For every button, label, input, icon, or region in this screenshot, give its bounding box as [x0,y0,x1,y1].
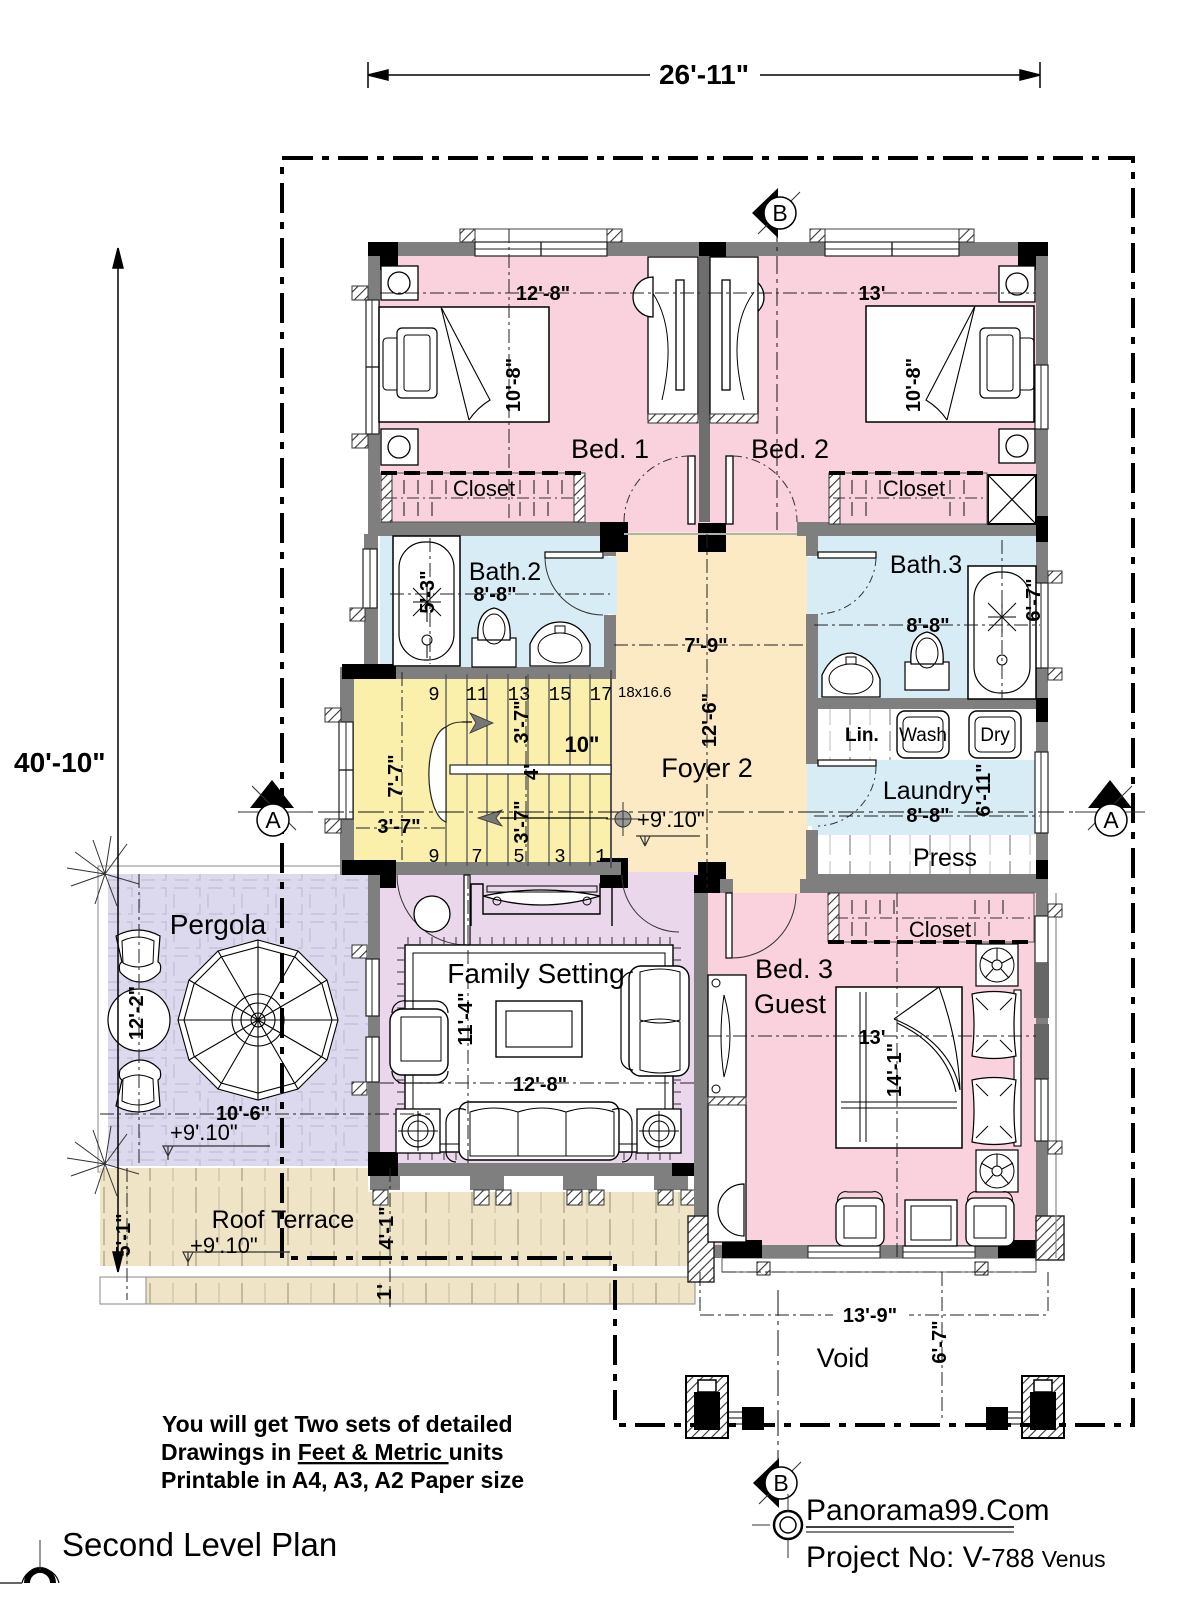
svg-text:A: A [265,807,281,833]
svg-text:Roof Terrace: Roof Terrace [212,1206,355,1234]
svg-text:Bath.3: Bath.3 [890,551,962,579]
svg-text:+9'.10": +9'.10" [637,807,705,832]
svg-text:4'-1": 4'-1" [376,1206,398,1249]
svg-text:12'-8": 12'-8" [513,1074,567,1096]
svg-text:12'-6": 12'-6" [699,693,721,747]
svg-text:7'-9": 7'-9" [684,635,727,657]
svg-text:13': 13' [858,1027,885,1049]
svg-text:6'-7": 6'-7" [929,1320,951,1363]
svg-text:A: A [1103,807,1119,833]
svg-text:Foyer 2: Foyer 2 [661,753,753,783]
svg-text:Press: Press [913,844,977,872]
svg-text:15: 15 [549,684,572,706]
svg-text:11'-4": 11'-4" [455,992,477,1045]
svg-text:Guest: Guest [754,989,827,1019]
svg-text:Bath.2: Bath.2 [469,558,541,586]
svg-text:6'-7": 6'-7" [1023,578,1045,621]
svg-text:You will get Two sets of detai: You will get Two sets of detailed [162,1411,513,1437]
svg-text:10'-8": 10'-8" [503,358,525,412]
svg-text:Pergola: Pergola [170,909,267,940]
svg-text:7'-7": 7'-7" [385,754,407,797]
svg-text:Drawings in Feet & Metric unit: Drawings in Feet & Metric units [161,1439,504,1465]
svg-text:17: 17 [590,684,613,706]
svg-text:3'-7": 3'-7" [511,800,533,843]
svg-text:Bed. 3: Bed. 3 [755,954,833,984]
svg-text:Wash: Wash [899,725,947,746]
svg-text:12'-2": 12'-2" [126,986,148,1040]
svg-text:8'-8": 8'-8" [473,584,516,606]
svg-text:Closet: Closet [453,476,515,501]
svg-text:13'-9": 13'-9" [843,1305,897,1327]
svg-text:Family Setting: Family Setting [447,958,624,989]
svg-text:+9'.10": +9'.10" [170,1120,238,1145]
svg-text:3: 3 [554,846,565,868]
svg-text:14'-1": 14'-1" [884,1043,906,1097]
svg-text:Panorama99.Com: Panorama99.Com [806,1494,1049,1527]
svg-text:Project No: V-788 Venus: Project No: V-788 Venus [806,1541,1106,1574]
svg-text:13': 13' [858,283,885,305]
svg-text:3'-7": 3'-7" [511,700,533,743]
svg-text:6'-11": 6'-11" [973,763,995,816]
svg-text:7: 7 [471,846,482,868]
svg-text:12'-8": 12'-8" [516,283,570,305]
svg-text:8'-8": 8'-8" [906,805,949,827]
svg-text:9: 9 [428,684,439,706]
svg-text:11: 11 [466,684,489,706]
svg-text:Second Level Plan: Second Level Plan [62,1526,337,1563]
svg-text:Void: Void [817,1343,870,1373]
svg-text:8'-8": 8'-8" [906,615,949,637]
svg-text:Laundry: Laundry [883,777,974,805]
svg-text:Dry: Dry [980,725,1010,746]
svg-text:5: 5 [513,846,524,868]
svg-text:5'-3": 5'-3" [417,570,439,613]
svg-text:10": 10" [565,732,600,757]
svg-text:Bed. 1: Bed. 1 [571,434,649,464]
svg-text:3'-7": 3'-7" [377,816,420,838]
svg-text:18x16.6: 18x16.6 [618,684,671,701]
svg-text:Printable in A4, A3, A2 Paper: Printable in A4, A3, A2 Paper size [161,1467,524,1493]
svg-text:1: 1 [595,846,606,868]
svg-text:Bed. 2: Bed. 2 [751,434,829,464]
svg-text:Closet: Closet [883,476,945,501]
svg-text:+9'.10": +9'.10" [190,1233,258,1258]
svg-text:Closet: Closet [909,917,971,942]
svg-text:B: B [773,1470,788,1496]
svg-text:9: 9 [428,846,439,868]
svg-text:Lin.: Lin. [845,725,879,746]
svg-text:40'-10": 40'-10" [14,747,106,778]
svg-text:5'-1": 5'-1" [113,1213,135,1256]
svg-text:4': 4' [521,764,543,780]
svg-text:10'-8": 10'-8" [903,358,925,412]
svg-text:26'-11": 26'-11" [659,59,749,90]
svg-text:1': 1' [374,1284,396,1300]
svg-text:B: B [772,200,787,226]
